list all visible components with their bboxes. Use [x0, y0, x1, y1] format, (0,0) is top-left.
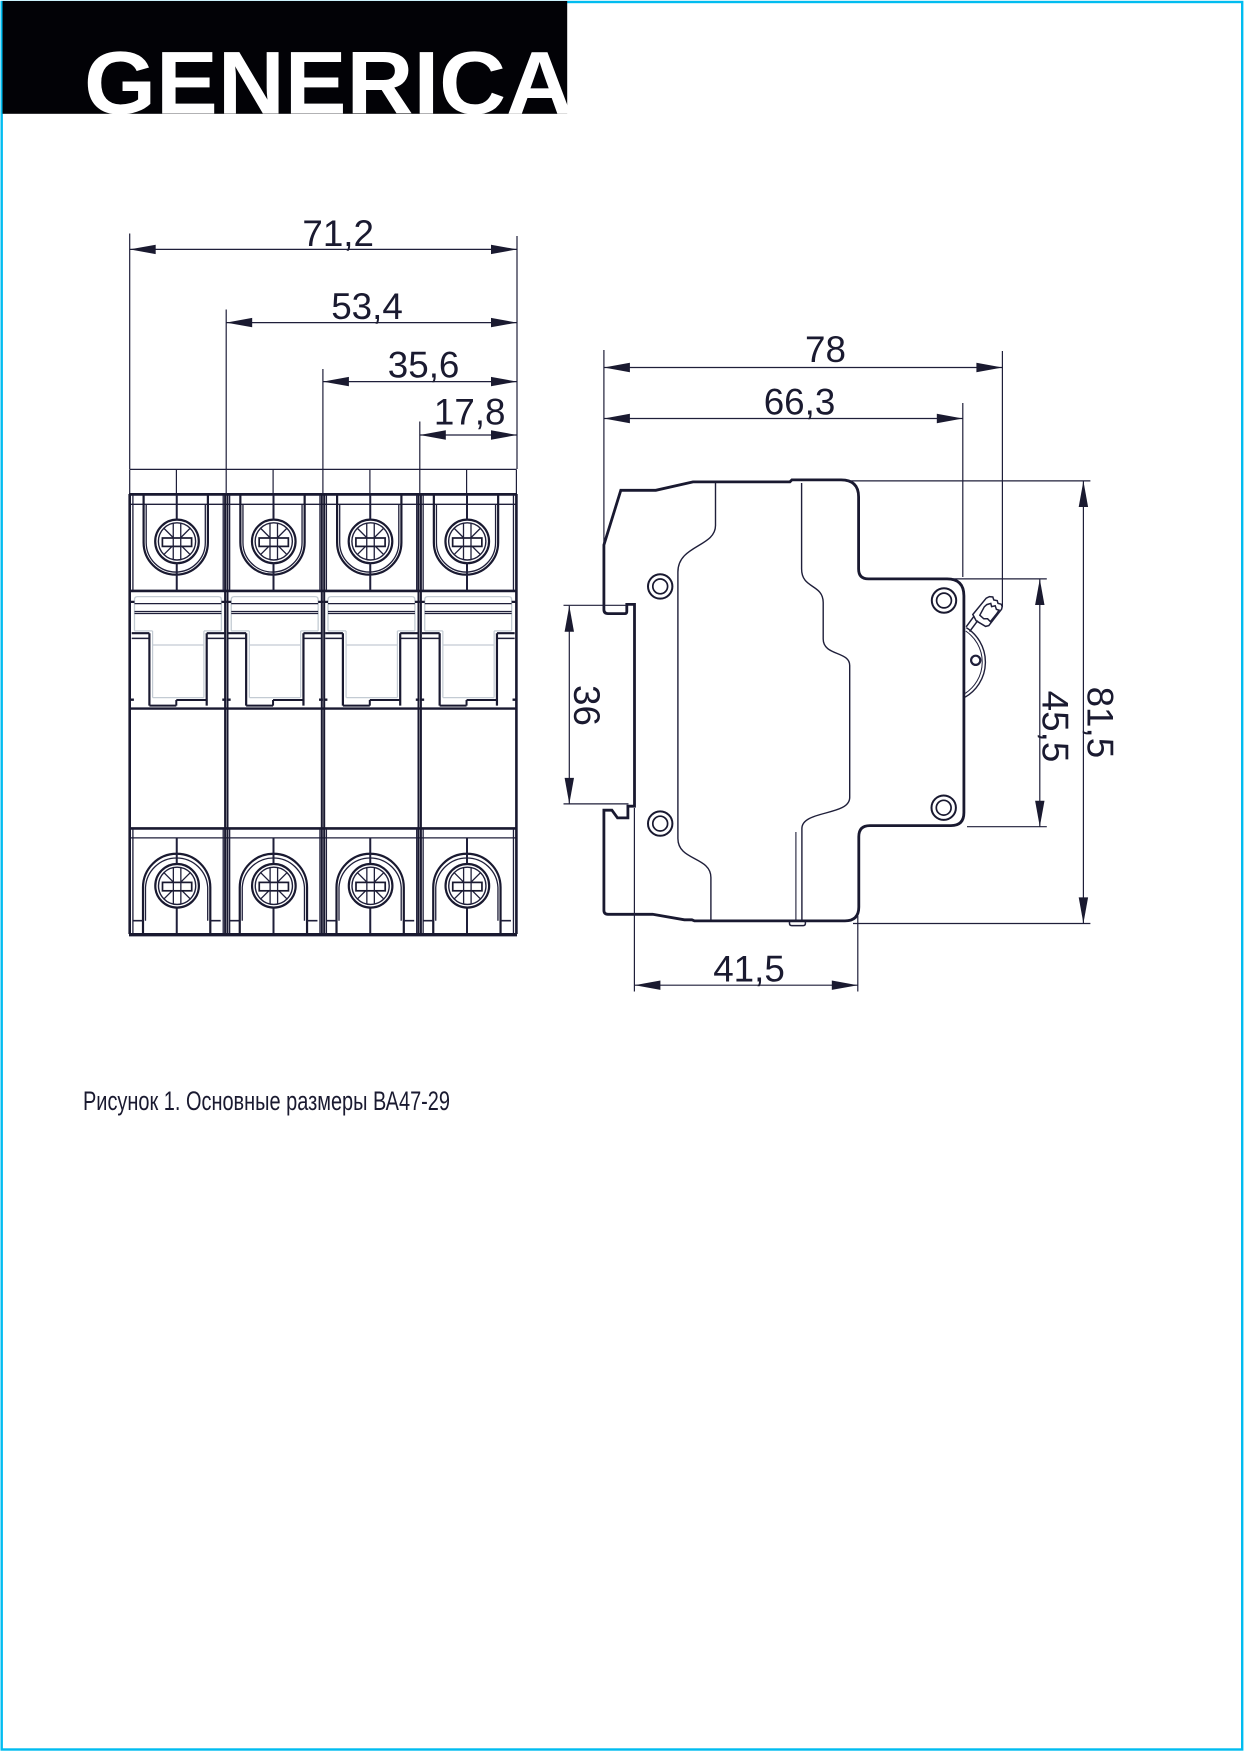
svg-text:71,2: 71,2 — [302, 213, 374, 254]
svg-text:GENERICA: GENERICA — [84, 33, 573, 133]
svg-text:35,6: 35,6 — [388, 344, 460, 385]
svg-text:41,5: 41,5 — [713, 949, 785, 990]
svg-text:66,3: 66,3 — [764, 381, 836, 422]
svg-text:53,4: 53,4 — [331, 286, 403, 327]
svg-text:36: 36 — [566, 685, 607, 726]
svg-text:78: 78 — [805, 329, 846, 370]
svg-text:45,5: 45,5 — [1034, 691, 1075, 763]
svg-text:Рисунок 1. Основные размеры ВА: Рисунок 1. Основные размеры ВА47-29 — [83, 1086, 450, 1116]
svg-text:81,5: 81,5 — [1080, 687, 1121, 759]
svg-text:17,8: 17,8 — [434, 392, 506, 433]
